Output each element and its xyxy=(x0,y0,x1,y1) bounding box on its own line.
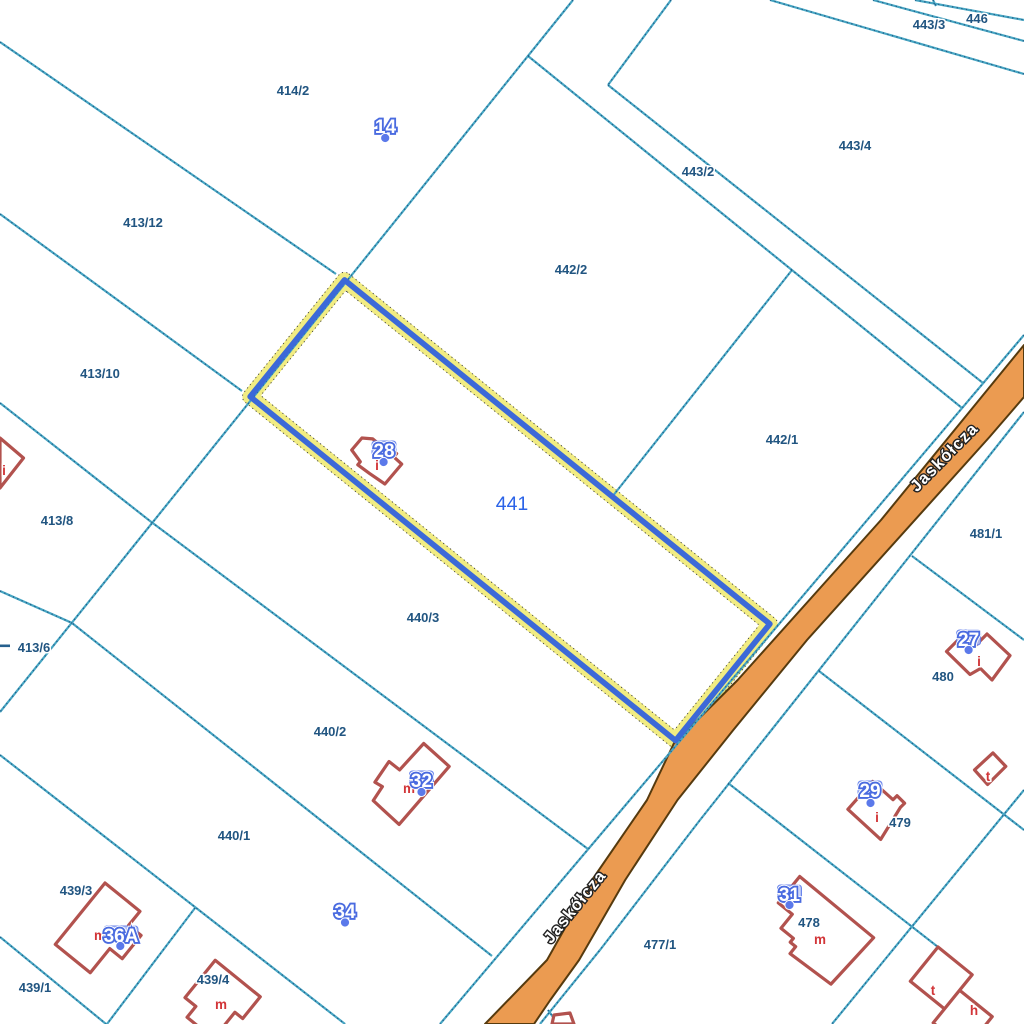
svg-text:413/6: 413/6 xyxy=(18,640,51,655)
svg-text:414/2: 414/2 xyxy=(277,83,310,98)
svg-text:i: i xyxy=(875,810,879,825)
svg-text:441: 441 xyxy=(496,493,529,515)
svg-text:i: i xyxy=(977,654,981,669)
svg-text:480: 480 xyxy=(932,669,954,684)
svg-text:440/2: 440/2 xyxy=(314,724,347,739)
svg-text:439/4: 439/4 xyxy=(197,972,230,987)
svg-text:443/4: 443/4 xyxy=(839,138,872,153)
svg-text:413/12: 413/12 xyxy=(123,215,163,230)
svg-text:413/10: 413/10 xyxy=(80,366,120,381)
svg-text:t: t xyxy=(986,769,991,784)
svg-text:443/3: 443/3 xyxy=(913,17,946,32)
svg-text:t: t xyxy=(931,983,936,998)
svg-text:477/1: 477/1 xyxy=(644,937,677,952)
svg-text:i: i xyxy=(2,463,6,478)
svg-text:m: m xyxy=(215,997,227,1012)
svg-text:413/8: 413/8 xyxy=(41,513,74,528)
svg-text:442/2: 442/2 xyxy=(555,262,588,277)
svg-text:446: 446 xyxy=(966,11,988,26)
svg-text:440/1: 440/1 xyxy=(218,828,251,843)
svg-text:442/1: 442/1 xyxy=(766,432,799,447)
svg-text:478: 478 xyxy=(798,915,820,930)
svg-text:439/3: 439/3 xyxy=(60,883,93,898)
svg-text:443/2: 443/2 xyxy=(682,164,715,179)
svg-text:481/1: 481/1 xyxy=(970,526,1003,541)
svg-text:h: h xyxy=(970,1003,978,1018)
svg-text:m: m xyxy=(814,932,826,947)
svg-text:439/1: 439/1 xyxy=(19,980,52,995)
svg-text:479: 479 xyxy=(889,815,911,830)
svg-text:440/3: 440/3 xyxy=(407,610,440,625)
